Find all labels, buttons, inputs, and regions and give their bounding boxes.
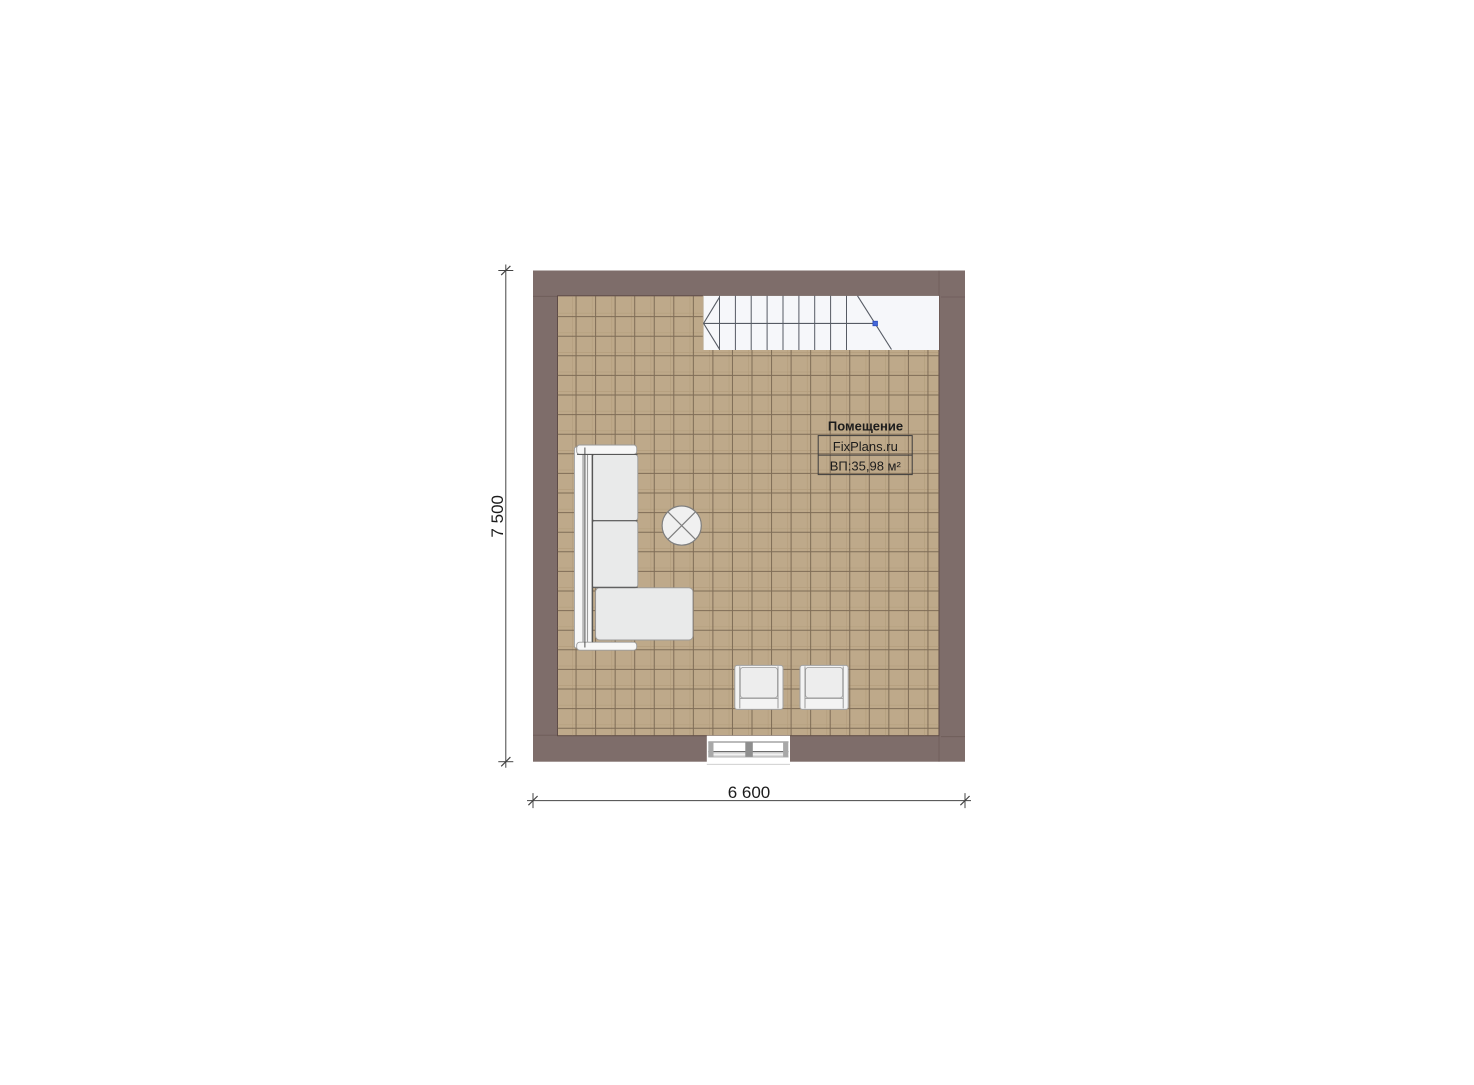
svg-text:FixPlans.ru: FixPlans.ru	[833, 439, 898, 454]
svg-text:6 600: 6 600	[728, 783, 771, 802]
svg-text:ВП:35,98 м²: ВП:35,98 м²	[830, 458, 902, 473]
svg-text:Помещение: Помещение	[828, 419, 903, 434]
svg-text:7 500: 7 500	[488, 495, 507, 538]
